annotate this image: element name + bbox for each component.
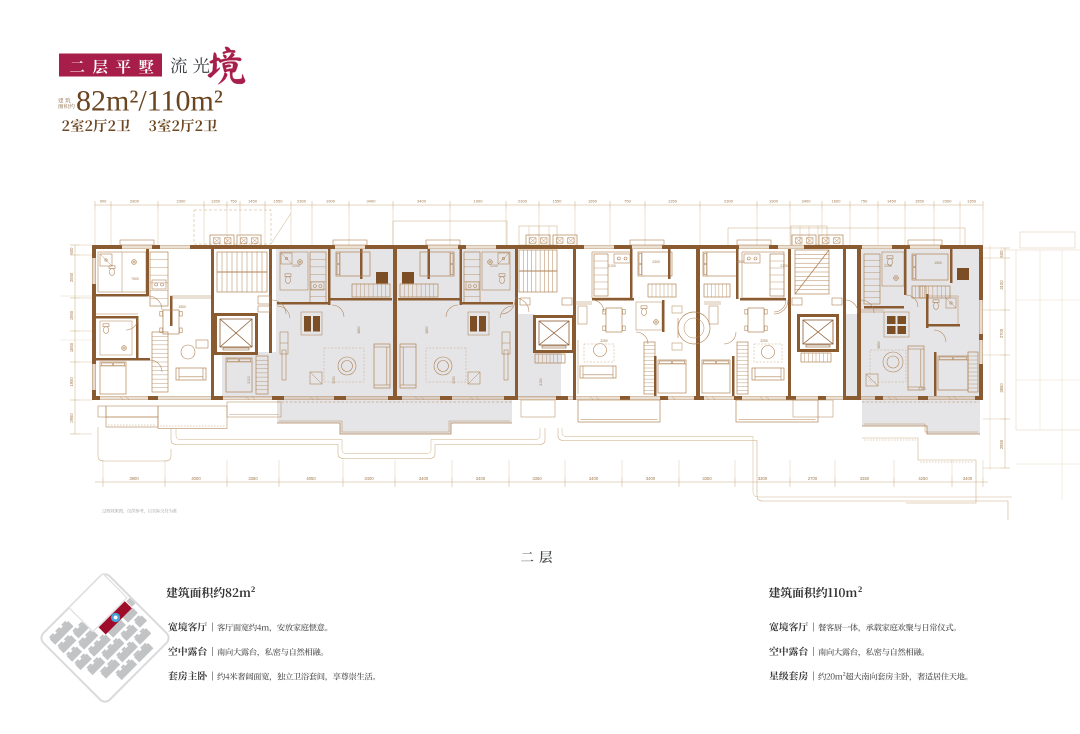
svg-text:1550: 1550 bbox=[553, 199, 563, 204]
svg-text:3250: 3250 bbox=[600, 339, 608, 343]
svg-text:2700: 2700 bbox=[918, 387, 926, 391]
svg-text:1900: 1900 bbox=[769, 199, 779, 204]
svg-text:1550: 1550 bbox=[915, 199, 925, 204]
svg-text:3350: 3350 bbox=[248, 476, 258, 481]
svg-text:3050: 3050 bbox=[452, 376, 456, 384]
svg-text:2300: 2300 bbox=[297, 199, 307, 204]
svg-text:3850: 3850 bbox=[999, 383, 1004, 393]
svg-text:3400: 3400 bbox=[364, 476, 374, 481]
svg-text:3350: 3350 bbox=[702, 476, 712, 481]
svg-text:2300: 2300 bbox=[652, 260, 660, 264]
svg-text:2550: 2550 bbox=[69, 272, 74, 282]
svg-text:3850: 3850 bbox=[425, 326, 429, 334]
svg-text:3850: 3850 bbox=[877, 341, 881, 349]
svg-text:900: 900 bbox=[100, 199, 107, 204]
svg-text:1350: 1350 bbox=[967, 199, 977, 204]
svg-text:3100: 3100 bbox=[999, 280, 1004, 290]
svg-text:2950: 2950 bbox=[999, 439, 1004, 449]
svg-text:2: 2 bbox=[251, 584, 255, 594]
svg-text:3400: 3400 bbox=[963, 476, 973, 481]
svg-text:600: 600 bbox=[69, 247, 74, 255]
svg-text:2300: 2300 bbox=[518, 199, 528, 204]
svg-text:3350: 3350 bbox=[532, 476, 542, 481]
svg-text:1450: 1450 bbox=[887, 199, 897, 204]
svg-text:1650: 1650 bbox=[588, 199, 598, 204]
svg-text:2100: 2100 bbox=[608, 264, 616, 268]
svg-text:3050: 3050 bbox=[332, 376, 336, 384]
svg-text:3850: 3850 bbox=[357, 326, 361, 334]
svg-text:2200: 2200 bbox=[292, 264, 300, 268]
svg-text:2800: 2800 bbox=[130, 199, 140, 204]
svg-text:1600: 1600 bbox=[832, 199, 842, 204]
svg-text:4250: 4250 bbox=[918, 476, 928, 481]
svg-text:1900: 1900 bbox=[474, 199, 484, 204]
svg-text:1900: 1900 bbox=[326, 199, 336, 204]
svg-text:750: 750 bbox=[624, 199, 631, 204]
svg-text:1350: 1350 bbox=[211, 199, 221, 204]
svg-text:4000: 4000 bbox=[191, 476, 201, 481]
svg-text:2200: 2200 bbox=[490, 264, 498, 268]
svg-text:1900: 1900 bbox=[69, 377, 74, 387]
svg-text:1950: 1950 bbox=[69, 310, 74, 320]
svg-text:2300: 2300 bbox=[724, 199, 734, 204]
svg-text:2200: 2200 bbox=[884, 264, 892, 268]
svg-text:3150: 3150 bbox=[539, 378, 543, 386]
svg-text:1550: 1550 bbox=[178, 305, 186, 309]
svg-text:2: 2 bbox=[858, 584, 862, 594]
svg-text:3300: 3300 bbox=[758, 476, 768, 481]
svg-text:3400: 3400 bbox=[646, 476, 656, 481]
svg-text:3400: 3400 bbox=[589, 476, 599, 481]
svg-text:82m²/110m²: 82m²/110m² bbox=[76, 85, 223, 118]
svg-text:7500: 7500 bbox=[131, 277, 139, 281]
svg-text:1500: 1500 bbox=[934, 261, 942, 265]
svg-text:750: 750 bbox=[861, 199, 868, 204]
svg-text:3250: 3250 bbox=[760, 339, 768, 343]
svg-text:3400: 3400 bbox=[802, 199, 812, 204]
svg-text:1300: 1300 bbox=[736, 260, 744, 264]
svg-text:2950: 2950 bbox=[69, 413, 74, 423]
svg-text:1550: 1550 bbox=[274, 199, 284, 204]
svg-text:2100: 2100 bbox=[780, 264, 788, 268]
svg-text:3400: 3400 bbox=[476, 476, 486, 481]
svg-text:3350: 3350 bbox=[860, 476, 870, 481]
svg-text:2300: 2300 bbox=[943, 199, 953, 204]
svg-text:4050: 4050 bbox=[306, 476, 316, 481]
svg-text:1850: 1850 bbox=[69, 342, 74, 352]
svg-text:750: 750 bbox=[230, 199, 237, 204]
svg-text:2300: 2300 bbox=[177, 199, 187, 204]
svg-text:3100: 3100 bbox=[247, 376, 251, 384]
svg-text:1450: 1450 bbox=[248, 199, 258, 204]
svg-text:2700: 2700 bbox=[999, 328, 1004, 338]
svg-text:3400: 3400 bbox=[367, 199, 377, 204]
svg-text:600: 600 bbox=[999, 250, 1004, 258]
svg-text:2700: 2700 bbox=[808, 476, 818, 481]
svg-text:1350: 1350 bbox=[668, 199, 678, 204]
svg-text:3400: 3400 bbox=[417, 199, 427, 204]
svg-text:3400: 3400 bbox=[419, 476, 429, 481]
svg-text:3900: 3900 bbox=[129, 476, 139, 481]
